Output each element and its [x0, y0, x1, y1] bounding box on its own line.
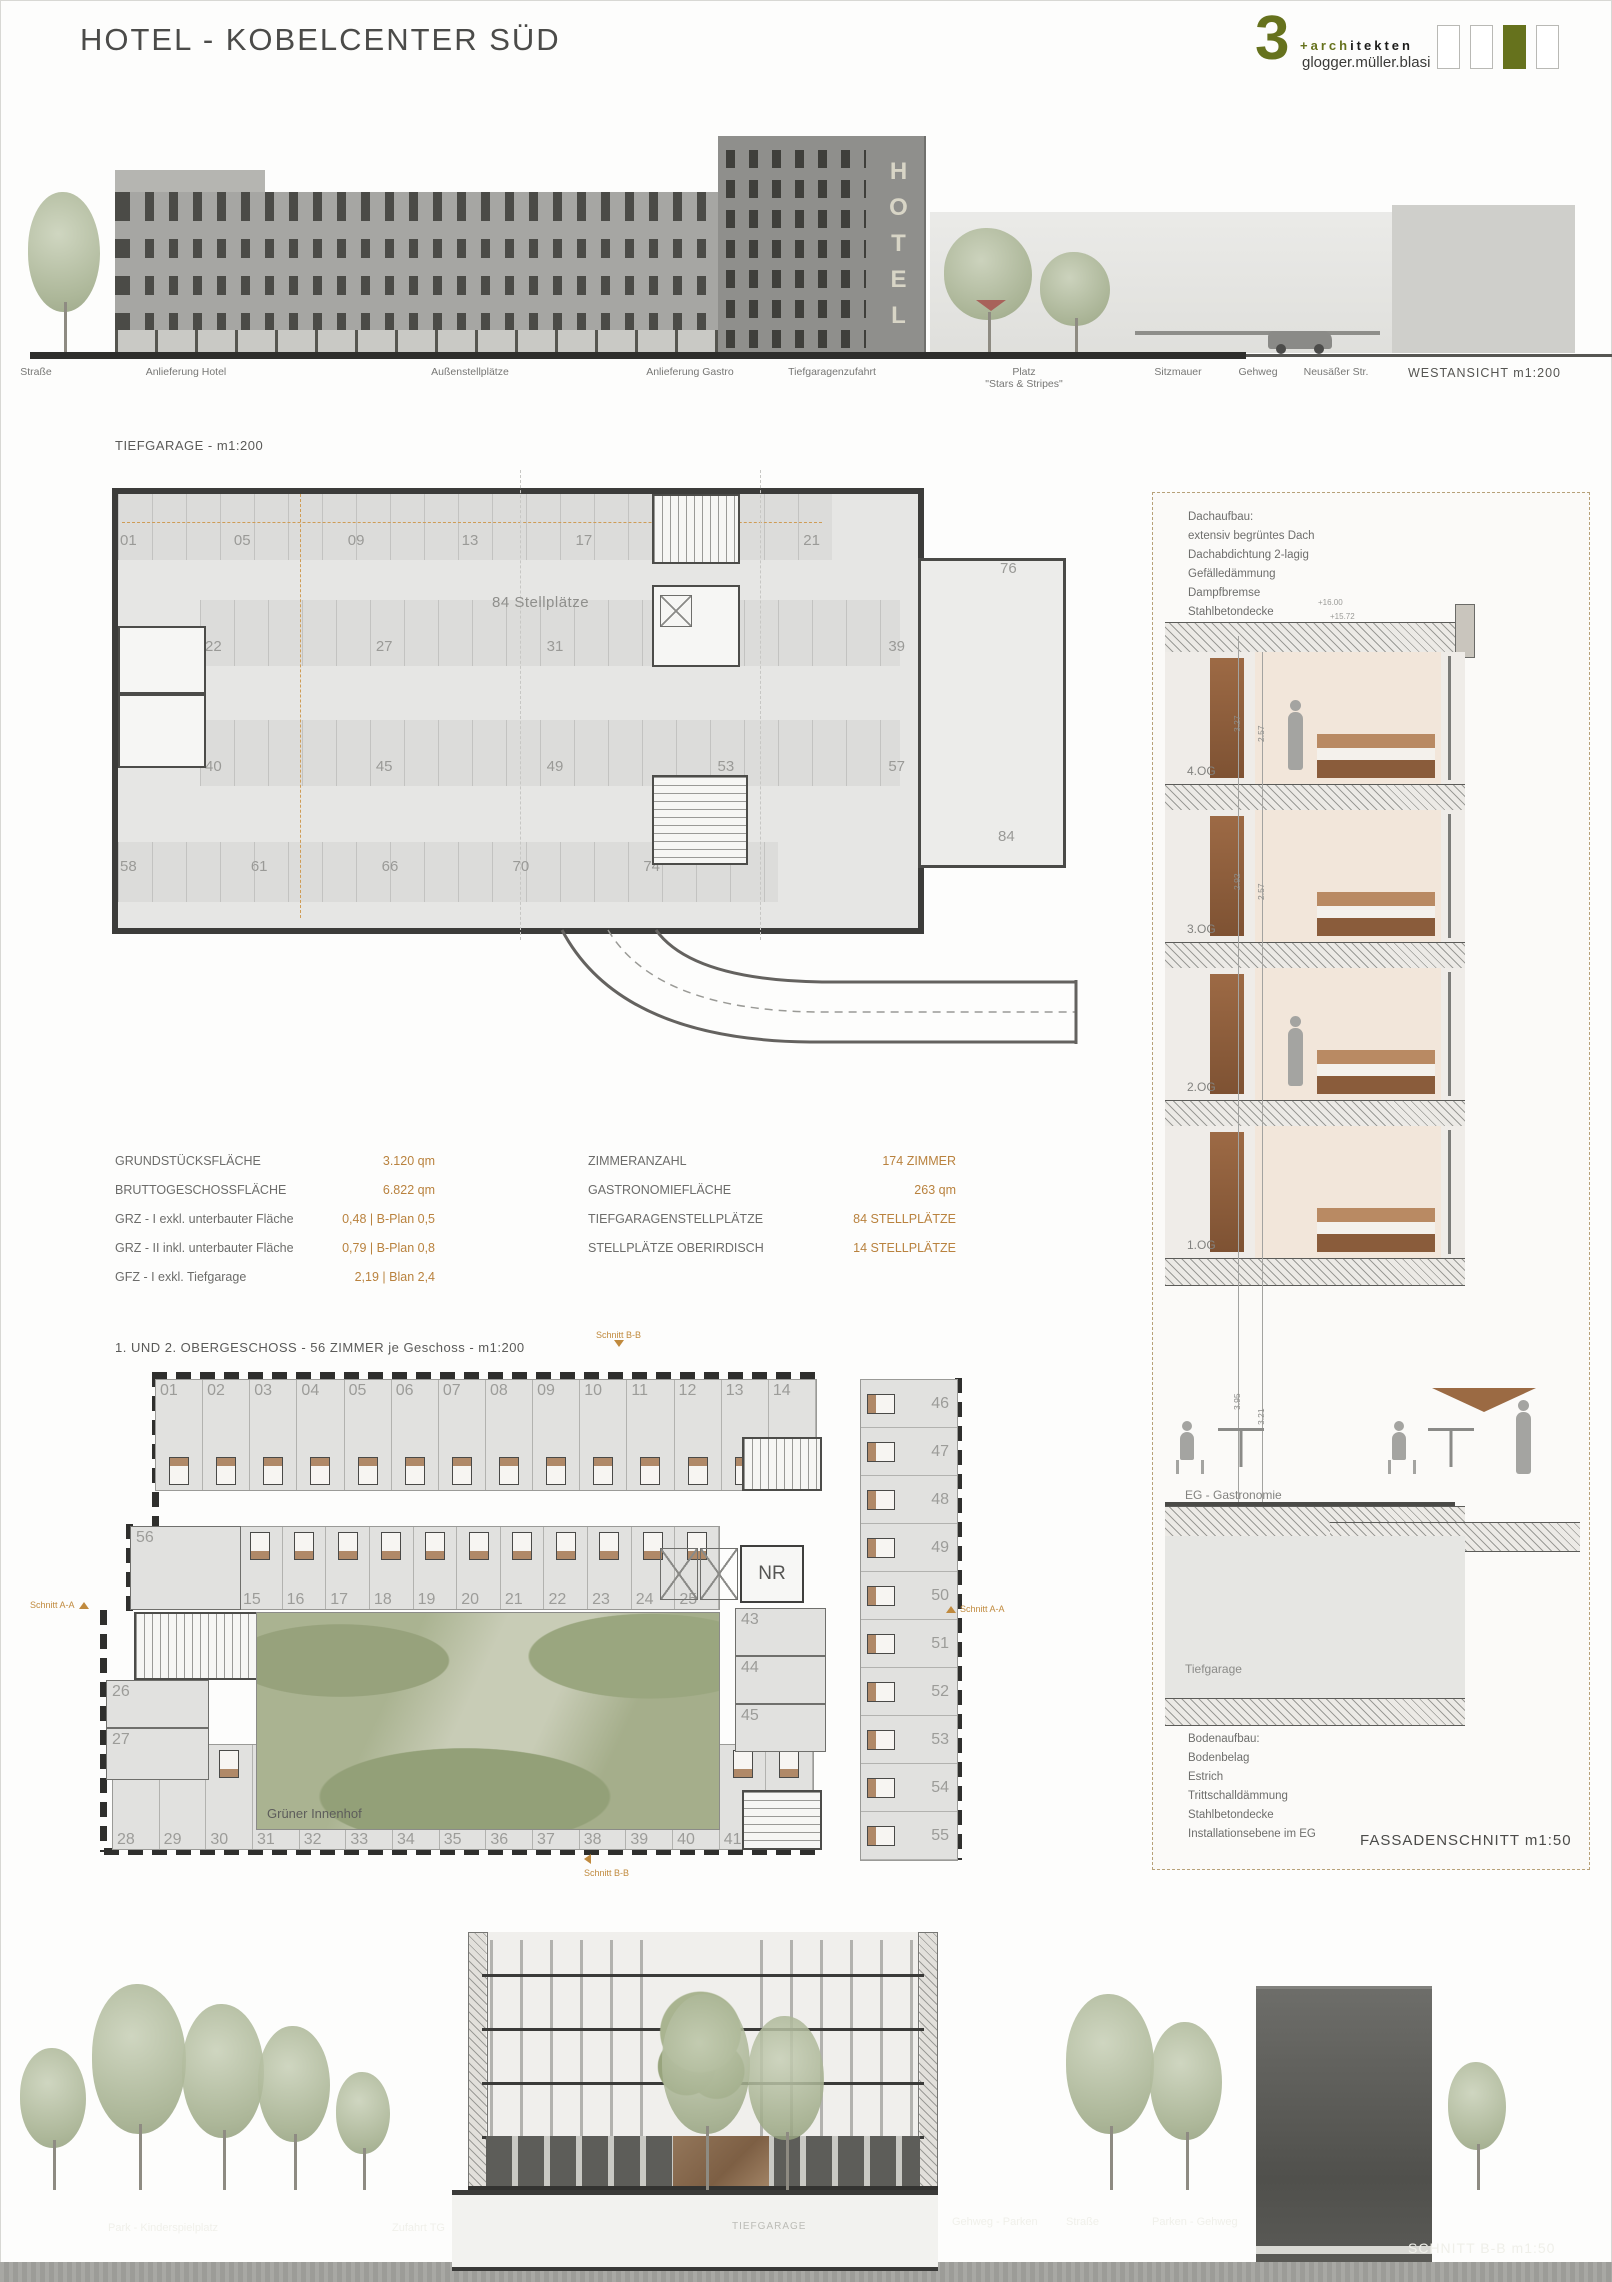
- tree-icon: [28, 192, 100, 354]
- floor-label: 2.OG: [1187, 1080, 1216, 1094]
- room-cell: 54: [861, 1764, 957, 1812]
- logo-number: 3: [1255, 8, 1289, 70]
- umbrella-icon: [976, 300, 1006, 311]
- note-line: Stahlbetondecke: [1188, 1806, 1316, 1825]
- person-seated-figure: [1180, 1432, 1194, 1460]
- stat-value: 174 ZIMMER: [882, 1154, 956, 1168]
- person-figure: [1516, 1412, 1531, 1474]
- tree-icon: [662, 1994, 750, 2190]
- logo-rest-text: itekten: [1350, 38, 1413, 53]
- stats-left-column: GRUNDSTÜCKSFLÄCHE3.120 qm BRUTTOGESCHOSS…: [115, 1146, 435, 1291]
- stat-row: TIEFGARAGENSTELLPLÄTZE84 STELLPLÄTZE: [588, 1204, 956, 1233]
- garage-stall-number: 21: [803, 532, 820, 549]
- tree-icon: [1448, 2062, 1506, 2190]
- ground-line-right: [1246, 354, 1612, 357]
- person-figure: [1288, 712, 1303, 770]
- garage-stair: [652, 494, 740, 564]
- note-line: Dachabdichtung 2-lagig: [1188, 546, 1315, 565]
- garage-stall-number: 66: [382, 858, 399, 875]
- tg-slab: [1165, 1698, 1465, 1726]
- stat-label: GASTRONOMIEFLÄCHE: [588, 1183, 731, 1197]
- stats-right-column: ZIMMERANZAHL174 ZIMMER GASTRONOMIEFLÄCHE…: [588, 1146, 956, 1262]
- section-bb-label: Schnitt B-B: [596, 1330, 641, 1340]
- garage-stall-band: [200, 720, 900, 786]
- elevator-icon: [700, 1548, 738, 1600]
- room-45: 45: [735, 1704, 826, 1752]
- dimension-text: 3.27: [1232, 715, 1242, 732]
- room-cell: 03: [250, 1380, 297, 1490]
- stat-row: GRZ - I exkl. unterbauter Fläche0,48 | B…: [115, 1204, 435, 1233]
- stat-label: BRUTTOGESCHOSSFLÄCHE: [115, 1183, 286, 1197]
- elevator-icon: [660, 1548, 698, 1600]
- floor-label: 1.OG: [1187, 1238, 1216, 1252]
- tree-icon: [258, 2026, 330, 2190]
- section-wall-hatch: [468, 1932, 488, 2192]
- elevation-label-aussenstellplaetze: Außenstellplätze: [431, 366, 509, 378]
- garage-number-76: 76: [1000, 560, 1017, 577]
- tree-icon: [944, 228, 1032, 356]
- room-cell: 15: [239, 1527, 283, 1609]
- tree-icon: [748, 2016, 824, 2190]
- tree-icon: [92, 1984, 186, 2190]
- room-cell: 47: [861, 1428, 957, 1476]
- logo-bar-icon: [1536, 25, 1559, 69]
- room-cell: 02: [203, 1380, 250, 1490]
- bottom-label-strasse: Straße: [1066, 2216, 1099, 2228]
- section-arrow-icon: [614, 1340, 624, 1347]
- window-glass-line: [1448, 814, 1451, 938]
- tg-label: Tiefgarage: [1185, 1662, 1242, 1676]
- note-line: extensiv begrüntes Dach: [1188, 527, 1315, 546]
- window-glass-line: [1448, 1130, 1451, 1254]
- garage-technik-room: [118, 626, 206, 694]
- facade-floor-room: 4.OG: [1165, 652, 1465, 784]
- section-aa-label: Schnitt A-A: [30, 1600, 75, 1610]
- stat-label: TIEFGARAGENSTELLPLÄTZE: [588, 1212, 763, 1226]
- person-seated-figure: [1392, 1432, 1406, 1460]
- room-43: 43: [735, 1608, 826, 1656]
- logo-bar-icon: [1437, 25, 1460, 69]
- garage-stall-number: 01: [120, 532, 137, 549]
- room-26: 26: [106, 1680, 209, 1728]
- section-aa-marker-left: Schnitt A-A: [30, 1600, 89, 1610]
- section-slab: [482, 1974, 924, 1977]
- roof-slab: [1165, 622, 1465, 654]
- stat-row: GFZ - I exkl. Tiefgarage2,19 | Blan 2,4: [115, 1262, 435, 1291]
- eg-label: EG - Gastronomie: [1185, 1488, 1282, 1502]
- room-cell: 53: [861, 1716, 957, 1764]
- car-icon: [1268, 331, 1332, 349]
- presentation-sheet: HOTEL - KOBELCENTER SÜD 3 +architekten g…: [0, 0, 1612, 2282]
- tree-icon: [1040, 252, 1110, 356]
- stat-label: STELLPLÄTZE OBERIRDISCH: [588, 1241, 764, 1255]
- dimension-text: 2.92: [1232, 873, 1242, 890]
- garage-title: TIEFGARAGE - m1:200: [115, 438, 263, 453]
- tree-icon: [336, 2072, 390, 2190]
- nr-room: NR: [740, 1545, 804, 1603]
- dimension-text: 2.57: [1256, 883, 1266, 900]
- stat-value: 84 STELLPLÄTZE: [853, 1212, 956, 1226]
- stat-label: ZIMMERANZAHL: [588, 1154, 687, 1168]
- logo-subtitle: glogger.müller.blasi: [1302, 54, 1430, 71]
- bottom-label-park: Park - Kinderspielplatz: [108, 2222, 218, 2234]
- garage-stall-number: 39: [888, 638, 905, 655]
- garage-number-84: 84: [998, 828, 1015, 845]
- stat-value: 0,48 | B-Plan 0,5: [342, 1212, 435, 1226]
- garage-numbers-row3: 4045495357: [205, 758, 905, 775]
- facade-floor-room: 3.OG: [1165, 810, 1465, 942]
- garage-stall-number: 58: [120, 858, 137, 875]
- section-aa-label: Schnitt A-A: [960, 1604, 1005, 1614]
- context-building: [1392, 205, 1575, 353]
- bed-block: [1317, 1208, 1435, 1252]
- elevation-caption: WESTANSICHT m1:200: [1408, 366, 1561, 380]
- tree-icon: [182, 2004, 264, 2190]
- section-arrow-icon: [946, 1606, 956, 1613]
- elevation-label-platz: Platz "Stars & Stripes": [985, 366, 1062, 390]
- room-cell: 07: [439, 1380, 486, 1490]
- garage-stall-number: 27: [376, 638, 393, 655]
- stat-row: GRZ - II inkl. unterbauter Fläche0,79 | …: [115, 1233, 435, 1262]
- section-windows: [490, 1940, 660, 2140]
- floor-slab: [1165, 942, 1465, 970]
- tree-icon: [1066, 1994, 1154, 2190]
- garage-stall-number: 45: [376, 758, 393, 775]
- elevator-icon: [660, 595, 692, 627]
- tower-window-grid: [726, 150, 866, 348]
- logo-accent-text: +arch: [1300, 38, 1350, 53]
- note-line: Dampfbremse: [1188, 584, 1315, 603]
- note-line: Installationsebene im EG: [1188, 1825, 1316, 1844]
- garage-stall-number: 13: [462, 532, 479, 549]
- stat-label: GFZ - I exkl. Tiefgarage: [115, 1270, 246, 1284]
- garage-stall-number: 61: [251, 858, 268, 875]
- floor-label: 4.OG: [1187, 764, 1216, 778]
- courtyard: Grüner Innenhof: [256, 1612, 720, 1830]
- garage-technik-room: [118, 694, 206, 768]
- room-cell: 55: [861, 1812, 957, 1860]
- dimension-text: 3.21: [1256, 1408, 1266, 1425]
- note-line: Stahlbetondecke: [1188, 603, 1315, 622]
- room-cell: 48: [861, 1476, 957, 1524]
- stat-label: GRZ - I exkl. unterbauter Fläche: [115, 1212, 294, 1226]
- garage-stall-number: 70: [512, 858, 529, 875]
- tg-section-band: TIEFGARAGE: [452, 2190, 938, 2271]
- plan-wall: [152, 1372, 818, 1379]
- note-line: Gefälledämmung: [1188, 565, 1315, 584]
- dimension-text: 2.57: [1256, 725, 1266, 742]
- person-figure: [1288, 1028, 1303, 1086]
- tree-icon: [20, 2048, 86, 2190]
- garage-stall-number: 09: [348, 532, 365, 549]
- section-bb-label: Schnitt B-B: [584, 1868, 629, 1878]
- tg-band-label: TIEFGARAGE: [732, 2221, 806, 2232]
- plan-stair: [742, 1437, 822, 1491]
- stat-row: STELLPLÄTZE OBERIRDISCH14 STELLPLÄTZE: [588, 1233, 956, 1262]
- facade-caption: FASSADENSCHNITT m1:50: [1360, 1832, 1572, 1849]
- bottom-label-parken-gehweg: Parken - Gehweg: [1152, 2216, 1238, 2228]
- stat-label: GRUNDSTÜCKSFLÄCHE: [115, 1154, 261, 1168]
- elevation-hotel-tower: HOTEL: [718, 136, 926, 357]
- stat-value: 0,79 | B-Plan 0,8: [342, 1241, 435, 1255]
- stat-row: BRUTTOGESCHOSSFLÄCHE6.822 qm: [115, 1175, 435, 1204]
- garage-stall-number: 31: [547, 638, 564, 655]
- note-line: Bodenbelag: [1188, 1749, 1316, 1768]
- rooms-right-band: 46474849505152535455: [860, 1379, 958, 1861]
- table-icon: [1218, 1428, 1264, 1431]
- window-glass-line: [1448, 656, 1451, 780]
- section-arrow-icon: [79, 1602, 89, 1609]
- garage-ramp: [560, 850, 1080, 1070]
- floor-notes: Bodenaufbau:BodenbelagEstrichTrittschall…: [1188, 1730, 1316, 1844]
- room-56: 56: [130, 1526, 241, 1610]
- room-44: 44: [735, 1656, 826, 1704]
- room-cell: 30: [206, 1745, 253, 1849]
- bottom-caption: SCHNITT B-B m1:50: [1408, 2240, 1555, 2256]
- elevation-label-gehweg: Gehweg: [1238, 366, 1277, 378]
- room-cell: 08: [486, 1380, 533, 1490]
- section-aa-marker-right: Schnitt A-A: [946, 1604, 1005, 1614]
- bottom-label-gehweg-parken: Gehweg - Parken: [952, 2216, 1038, 2228]
- rooms-top-band: 0102030405060708091011121314: [155, 1379, 817, 1491]
- room-cell: 01: [156, 1380, 203, 1490]
- garage-stall-number: 40: [205, 758, 222, 775]
- garage-extension: [918, 558, 1066, 868]
- room-cell: 16: [283, 1527, 327, 1609]
- stat-value: 6.822 qm: [383, 1183, 435, 1197]
- hotel-sign: HOTEL: [884, 158, 912, 338]
- elevation-label-sitzmauer: Sitzmauer: [1154, 366, 1201, 378]
- courtyard-label: Grüner Innenhof: [267, 1806, 362, 1821]
- bed-block: [1317, 734, 1435, 778]
- room-cell: 18: [370, 1527, 414, 1609]
- room-27: 27: [106, 1728, 209, 1780]
- logo-bar-icon: [1503, 25, 1526, 69]
- room-cell: 17: [326, 1527, 370, 1609]
- roof-notes: Dachaufbau:extensiv begrüntes DachDachab…: [1188, 508, 1315, 622]
- garage-count-label: 84 Stellplätze: [492, 594, 589, 611]
- garage-stall-number: 49: [547, 758, 564, 775]
- sitzmauer-line: [1135, 331, 1380, 335]
- ground-line: [30, 352, 1246, 359]
- table-icon: [1428, 1428, 1474, 1431]
- bed-block: [1317, 892, 1435, 936]
- wall-foot: [1256, 2246, 1432, 2254]
- bed-block: [1317, 1050, 1435, 1094]
- room-cell: 22: [544, 1527, 588, 1609]
- room-cell: 19: [414, 1527, 458, 1609]
- bottom-label-zufahrt: Zufahrt TG: [392, 2222, 445, 2234]
- elevation-label-strasse: Straße: [20, 366, 52, 378]
- elevation-groundfloor-glazing: [115, 330, 722, 354]
- elevation-label-neusaesser: Neusäßer Str.: [1304, 366, 1369, 378]
- facade-floor-room: 2.OG: [1165, 968, 1465, 1100]
- garage-stall-number: 17: [576, 532, 593, 549]
- garage-stall-number: 22: [205, 638, 222, 655]
- logo-wordmark: +architekten: [1300, 38, 1413, 53]
- dimension-text: 3.95: [1232, 1393, 1242, 1410]
- page-title: HOTEL - KOBELCENTER SÜD: [80, 22, 561, 58]
- note-line: Estrich: [1188, 1768, 1316, 1787]
- logo-bar-icon: [1470, 25, 1493, 69]
- room-cell: 10: [580, 1380, 627, 1490]
- garage-stall-number: 53: [717, 758, 734, 775]
- section-wall-hatch: [918, 1932, 938, 2192]
- room-cell: 12: [675, 1380, 722, 1490]
- stat-row: GASTRONOMIEFLÄCHE263 qm: [588, 1175, 956, 1204]
- floor-slab: [1165, 784, 1465, 812]
- stat-row: ZIMMERANZAHL174 ZIMMER: [588, 1146, 956, 1175]
- tree-icon: [1150, 2022, 1222, 2190]
- room-cell: 51: [861, 1620, 957, 1668]
- floorplan-title: 1. UND 2. OBERGESCHOSS - 56 ZIMMER je Ge…: [115, 1340, 525, 1355]
- garage-stall-number: 05: [234, 532, 251, 549]
- stat-value: 2,19 | Blan 2,4: [355, 1270, 435, 1284]
- plan-stair: [134, 1612, 258, 1680]
- floor-slab: [1165, 1100, 1465, 1128]
- room-cell: 21: [501, 1527, 545, 1609]
- section-arrow-icon: [584, 1854, 591, 1864]
- room-cell: 46: [861, 1380, 957, 1428]
- window-glass-line: [1448, 972, 1451, 1096]
- room-cell: 04: [297, 1380, 344, 1490]
- stat-value: 3.120 qm: [383, 1154, 435, 1168]
- level-annotation: +16.00: [1318, 598, 1343, 607]
- plan-stair: [742, 1790, 822, 1850]
- stat-row: GRUNDSTÜCKSFLÄCHE3.120 qm: [115, 1146, 435, 1175]
- room-cell: 49: [861, 1524, 957, 1572]
- parapet: [1455, 604, 1475, 658]
- floor-label: 3.OG: [1187, 922, 1216, 936]
- elevation-label-tiefgaragenzufahrt: Tiefgaragenzufahrt: [788, 366, 876, 378]
- note-line: Dachaufbau:: [1188, 508, 1315, 527]
- room-cell: 23: [588, 1527, 632, 1609]
- garage-stall-number: 57: [888, 758, 905, 775]
- facade-floor-room: 1.OG: [1165, 1126, 1465, 1258]
- level-annotation: +15.72: [1330, 612, 1355, 621]
- room-cell: 09: [533, 1380, 580, 1490]
- room-cell: 11: [627, 1380, 674, 1490]
- floor-slab: [1165, 1258, 1465, 1286]
- room-cell: 50: [861, 1572, 957, 1620]
- wall-photo-block: [1256, 1986, 1432, 2262]
- elevation-label-anlieferung-gastro: Anlieferung Gastro: [646, 366, 734, 378]
- stat-value: 14 STELLPLÄTZE: [853, 1241, 956, 1255]
- stat-label: GRZ - II inkl. unterbauter Fläche: [115, 1241, 294, 1255]
- section-bb-marker-bottom: Schnitt B-B: [584, 1854, 629, 1878]
- rooms-mid-band: 1516171819202122232425: [238, 1526, 720, 1610]
- elevation-label-anlieferung-hotel: Anlieferung Hotel: [146, 366, 227, 378]
- room-cell: 05: [345, 1380, 392, 1490]
- room-cell: 20: [457, 1527, 501, 1609]
- note-line: Trittschalldämmung: [1188, 1787, 1316, 1806]
- section-bb-marker-top: Schnitt B-B: [596, 1330, 641, 1347]
- room-cell: 52: [861, 1668, 957, 1716]
- garage-dimension-line-v: [300, 494, 301, 918]
- room-cell: 06: [392, 1380, 439, 1490]
- garage-numbers-row2: 2227313539: [205, 638, 905, 655]
- stat-value: 263 qm: [914, 1183, 956, 1197]
- note-line: Bodenaufbau:: [1188, 1730, 1316, 1749]
